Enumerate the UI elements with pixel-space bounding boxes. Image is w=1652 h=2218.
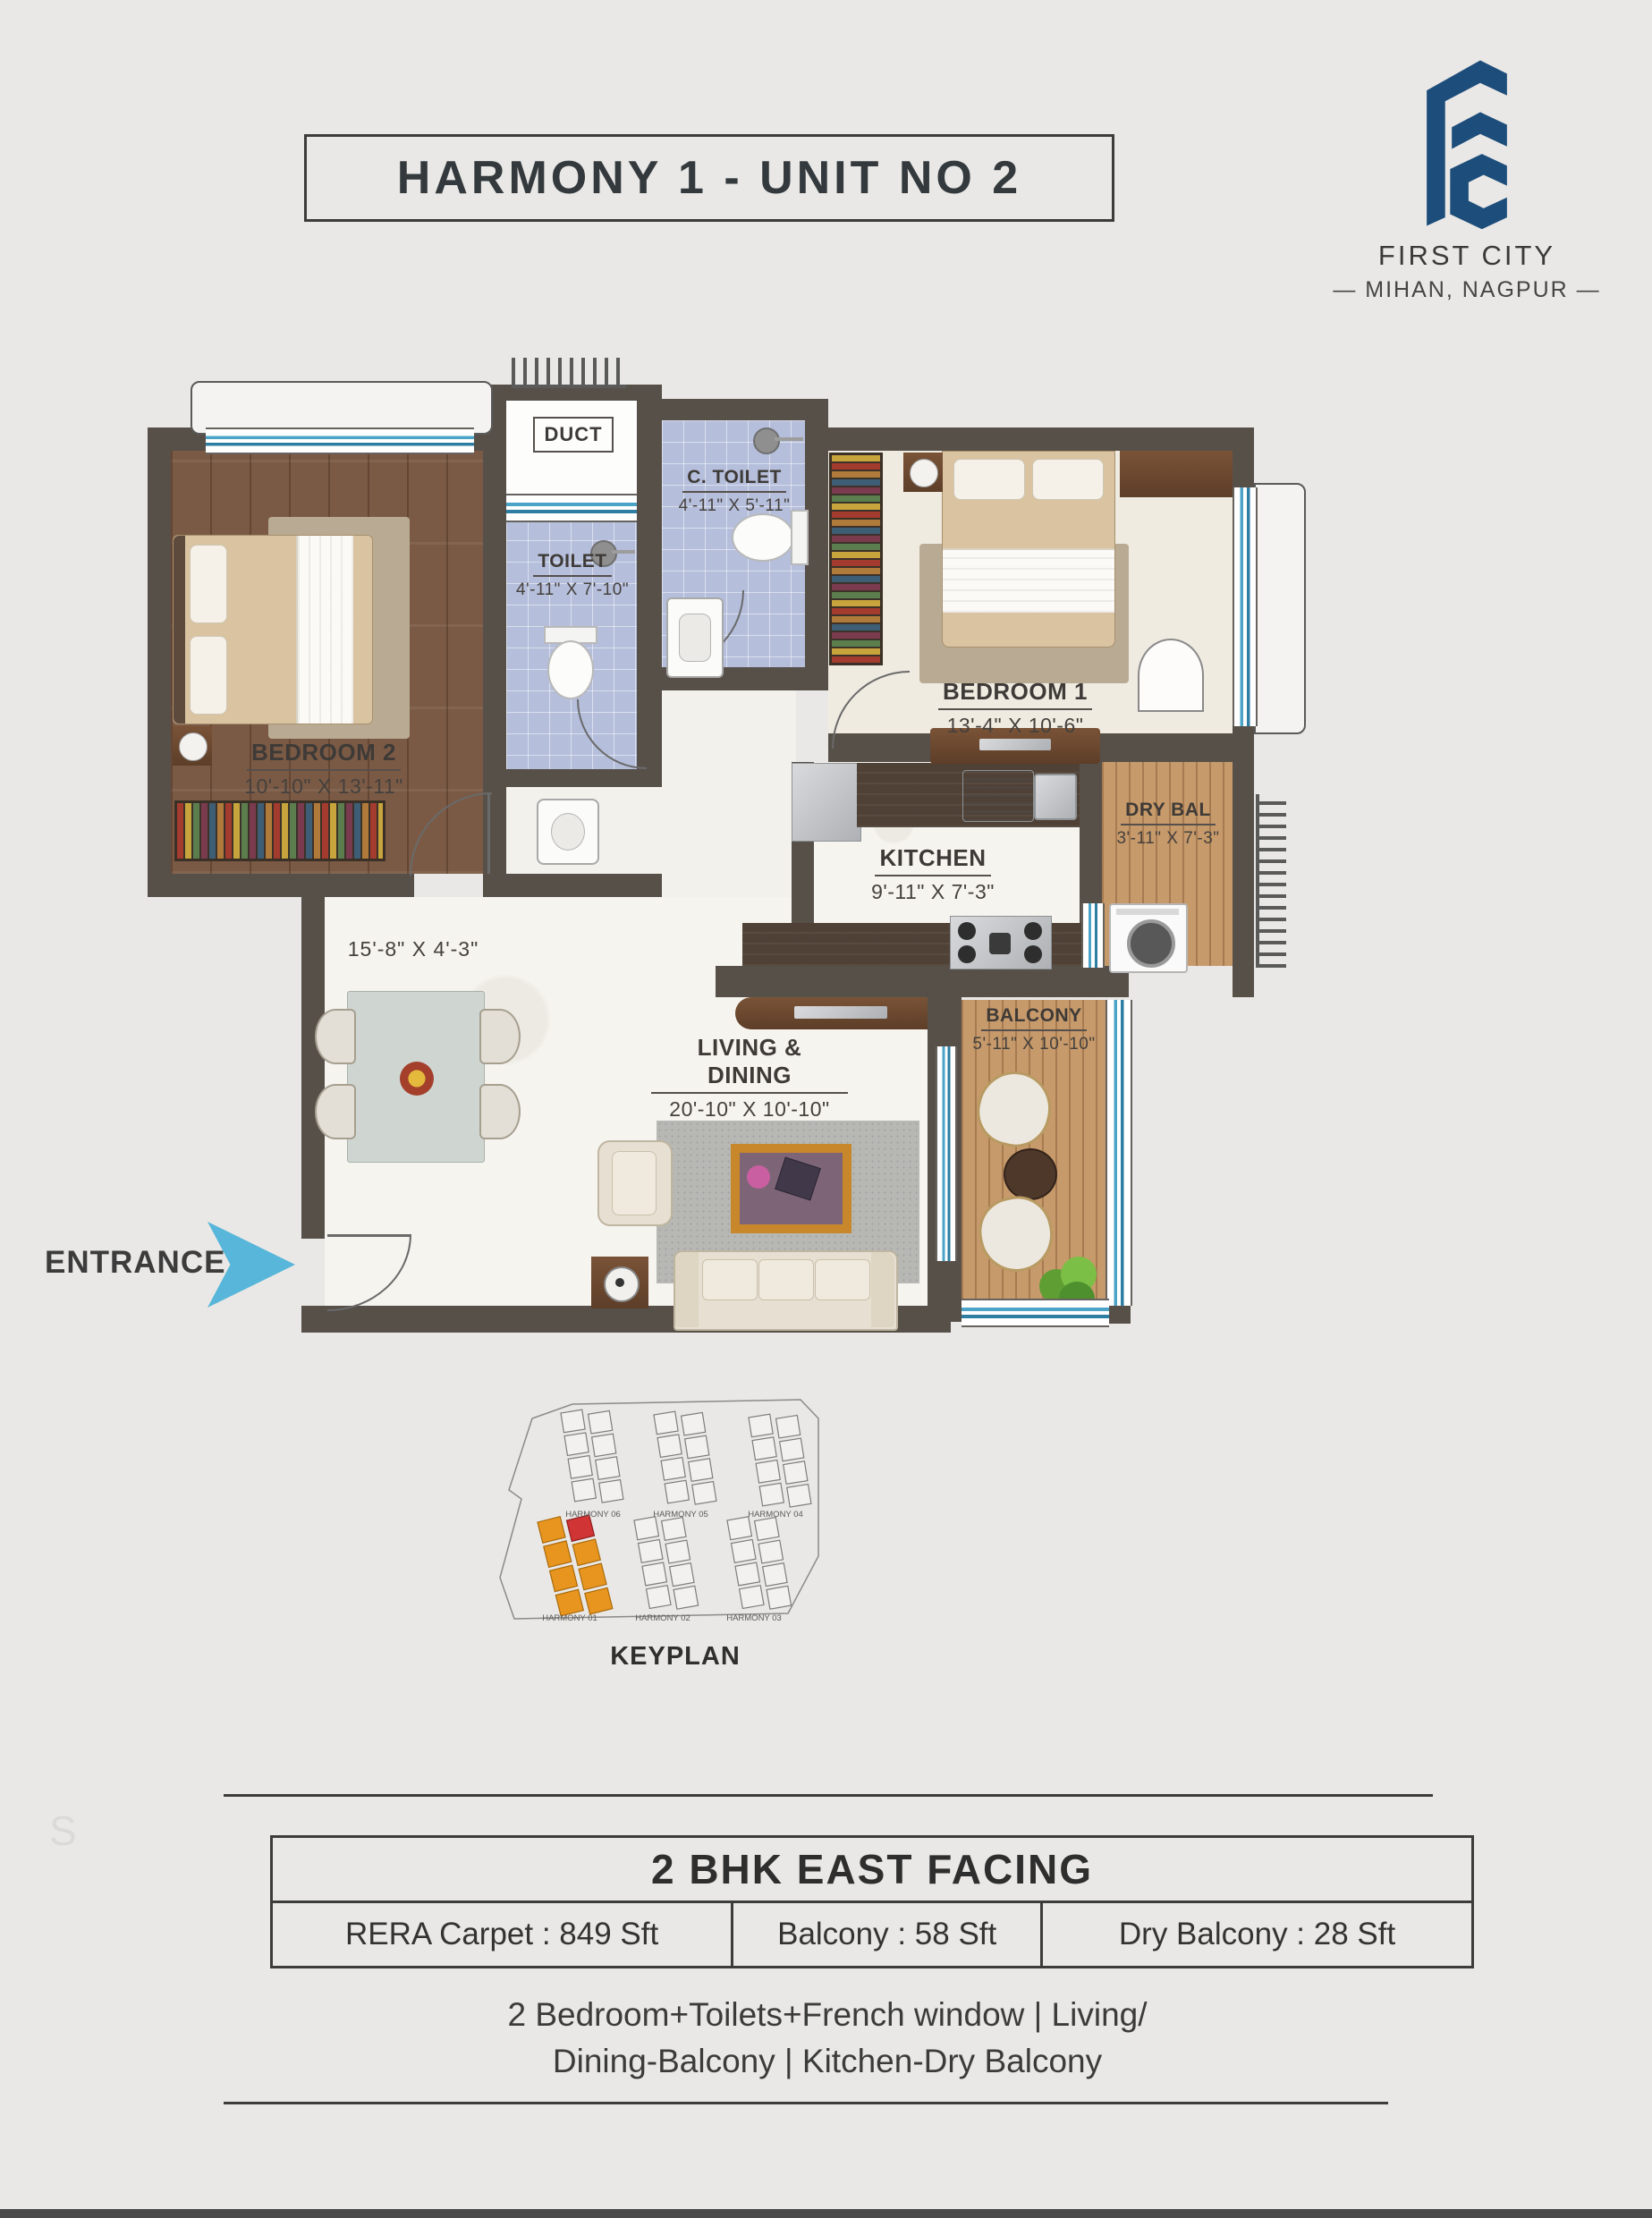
sofa-arm — [871, 1252, 894, 1327]
unit-spec-box: 2 BHK EAST FACING RERA Carpet : 849 Sft … — [270, 1835, 1474, 1968]
unit-type-heading: 2 BHK EAST FACING — [273, 1838, 1471, 1903]
bedroom2-label: BEDROOM 2 10'-10" X 13'-11" — [216, 739, 431, 799]
tv-icon — [794, 1006, 887, 1019]
washing-machine-icon — [1109, 903, 1188, 973]
sofa-arm — [675, 1252, 699, 1327]
bedroom1-wardrobe — [829, 453, 883, 665]
wall — [148, 428, 171, 897]
bedroom2-nightstand — [173, 726, 212, 766]
tray-icon — [775, 1156, 821, 1200]
sink-bowl-icon — [1034, 774, 1077, 820]
coffee-table — [731, 1144, 851, 1233]
living-dining-label: LIVING & DINING 20'-10" X 10'-10" — [651, 1034, 848, 1122]
wash-basin — [537, 799, 599, 865]
bed-blanket — [943, 548, 1114, 613]
shower-icon — [753, 428, 780, 454]
keyplan: HARMONY 06 HARMONY 05 HARMONY 04 HARMONY… — [487, 1395, 863, 1681]
bed-blanket — [296, 536, 353, 724]
keyplan-building-label: HARMONY 05 — [653, 1510, 708, 1520]
dry-balcony-label: DRY BAL 3'-11" X 7'-3" — [1107, 800, 1229, 849]
dining-dims-label: 15'-8" X 4'-3" — [315, 937, 512, 961]
kitchen-counter-top — [857, 763, 1080, 827]
sofa-cushion — [702, 1259, 758, 1300]
tv-icon — [979, 739, 1051, 750]
french-window-box — [191, 381, 493, 435]
keyplan-building-label: HARMONY 04 — [748, 1510, 803, 1520]
balcony-table-icon — [1004, 1148, 1057, 1200]
speaker-box — [591, 1257, 648, 1308]
unit-spec-row: RERA Carpet : 849 Sft Balcony : 58 Sft D… — [273, 1903, 1471, 1966]
burner-icon — [1024, 922, 1042, 940]
keyplan-building-label: HARMONY 01 — [542, 1613, 597, 1623]
bedroom1-french-window — [1233, 487, 1258, 726]
dining-chair — [315, 1084, 356, 1139]
sofa-cushion — [815, 1259, 870, 1300]
duct-label: DUCT — [544, 423, 602, 446]
bed-pillow — [1032, 459, 1104, 500]
flowers-icon — [747, 1165, 770, 1189]
spec-rera-carpet: RERA Carpet : 849 Sft — [273, 1903, 731, 1966]
c-toilet-label: C. TOILET 4'-11" X 5'-11" — [664, 467, 805, 516]
keyplan-building-label: HARMONY 03 — [726, 1613, 782, 1623]
armchair-cushion — [612, 1151, 657, 1215]
dry-balcony-vent-icon — [1256, 794, 1286, 968]
wall — [649, 399, 828, 420]
unit-description-line2: Dining-Balcony | Kitchen-Dry Balcony — [268, 2043, 1386, 2080]
divider-line — [224, 1794, 1433, 1797]
unit-description-line1: 2 Bedroom+Toilets+French window | Living… — [268, 1996, 1386, 2034]
watermark: S — [49, 1807, 77, 1855]
lamp-icon — [179, 732, 208, 761]
keyplan-map: HARMONY 06 HARMONY 05 HARMONY 04 HARMONY… — [487, 1395, 863, 1635]
burner-icon — [958, 922, 976, 940]
passage-basin — [666, 597, 724, 678]
balcony-bottom-window — [962, 1299, 1109, 1327]
fruit-plate-icon — [400, 1062, 434, 1096]
burner-icon — [958, 945, 976, 963]
duct-vent-icon — [512, 358, 626, 388]
keyplan-building-label: HARMONY 06 — [565, 1510, 621, 1520]
bedroom1-arch-niche — [1138, 639, 1204, 712]
washer-panel — [1116, 909, 1179, 915]
kitchen-label: KITCHEN 9'-11" X 7'-3" — [843, 844, 1022, 904]
wall — [805, 428, 1254, 451]
lamp-icon — [910, 459, 938, 487]
page-bottom-bar — [0, 2209, 1652, 2218]
entrance-door-leaf — [327, 1234, 410, 1237]
keyplan-title: KEYPLAN — [487, 1642, 863, 1672]
bedroom2-bed — [173, 535, 373, 724]
bedroom2-door-leaf — [487, 792, 490, 874]
bedroom1-label: BEDROOM 1 13'-4" X 10'-6" — [917, 678, 1114, 738]
stove-icon — [950, 916, 1052, 969]
balcony-sliding-door — [936, 1046, 957, 1261]
dining-chair — [479, 1084, 521, 1139]
floor-plan: ENTRANCE BEDROOM 2 10'-10" X 13'-11" DUC… — [0, 0, 1652, 1359]
bed-pillow — [190, 545, 227, 623]
toilet-wc — [547, 640, 594, 699]
duct-louver-window — [506, 494, 637, 522]
c-toilet-wc-tank — [791, 510, 809, 565]
wall — [490, 874, 662, 897]
wall — [506, 769, 662, 787]
fridge — [792, 763, 861, 842]
duct-label-box: DUCT — [533, 417, 614, 453]
burner-icon — [989, 933, 1011, 954]
spec-dry-balcony: Dry Balcony : 28 Sft — [1040, 1903, 1471, 1966]
balcony-right-window — [1106, 1000, 1132, 1306]
sofa — [674, 1250, 898, 1331]
bedroom2-wardrobe — [174, 800, 385, 861]
bedroom1-nightstand — [903, 453, 943, 492]
divider-line — [224, 2102, 1388, 2104]
bedroom2-window — [206, 428, 474, 454]
bed-headboard — [174, 536, 185, 724]
speaker-dot-icon — [615, 1278, 624, 1287]
toilet-label: TOILET 4'-11" X 7'-10" — [510, 551, 635, 600]
dry-balcony-door — [1081, 903, 1105, 968]
c-toilet-wc — [732, 513, 794, 562]
wall — [325, 874, 414, 897]
french-window-box — [1254, 483, 1306, 734]
wall — [716, 966, 1129, 997]
wall — [1233, 762, 1254, 997]
armchair — [597, 1140, 673, 1226]
wall — [148, 874, 326, 897]
burner-icon — [1024, 945, 1042, 963]
brochure-page: HARMONY 1 - UNIT NO 2 FIRST CITY — MIHAN… — [0, 0, 1652, 2218]
washer-drum-icon — [1127, 919, 1175, 968]
dining-chair — [315, 1009, 356, 1064]
basin-bowl-icon — [679, 614, 711, 662]
bed-pillow — [953, 459, 1025, 500]
balcony-label: BALCONY 5'-11" X 10'-10" — [966, 1005, 1102, 1054]
tv-unit — [735, 997, 928, 1029]
bedroom1-bed — [942, 451, 1115, 648]
bedroom1-closet — [1120, 451, 1233, 497]
sink-icon — [962, 770, 1034, 822]
bed-pillow — [190, 636, 227, 715]
entrance-label: ENTRANCE — [45, 1245, 225, 1281]
sofa-cushion — [758, 1259, 814, 1300]
shower-arm — [775, 437, 803, 441]
basin-bowl-icon — [551, 813, 585, 851]
dining-table — [347, 991, 485, 1163]
keyplan-building-label: HARMONY 02 — [635, 1613, 690, 1623]
dining-chair — [479, 1009, 521, 1064]
spec-balcony: Balcony : 58 Sft — [731, 1903, 1040, 1966]
